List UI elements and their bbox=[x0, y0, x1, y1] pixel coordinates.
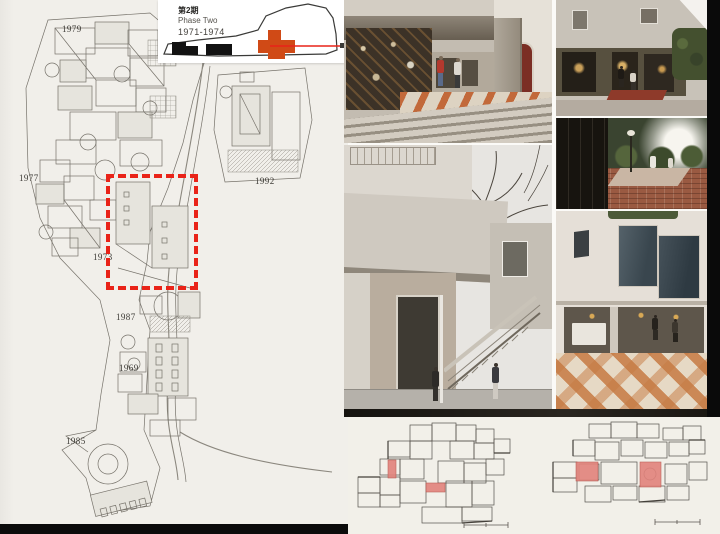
scan-edge-bottom-left bbox=[0, 524, 348, 534]
pedestrian-white-top bbox=[454, 58, 461, 88]
year-label-1979: 1979 bbox=[62, 24, 82, 34]
scan-edge-right bbox=[707, 0, 720, 417]
glass-window-1 bbox=[618, 225, 658, 287]
presentation-board: 1979 1977 1973 1987 1969 1985 1992 第2期 P… bbox=[0, 0, 720, 534]
hedge bbox=[672, 28, 707, 80]
pilaster bbox=[610, 307, 618, 353]
cafe-patron-1 bbox=[652, 315, 658, 340]
ground bbox=[556, 100, 707, 116]
checkered-plaza bbox=[556, 353, 707, 409]
cantilever-volume bbox=[344, 193, 508, 284]
roof-greenery bbox=[608, 211, 678, 219]
white-counter bbox=[572, 323, 606, 345]
facade-window-1 bbox=[572, 10, 588, 30]
pedestrian-dark-coat bbox=[432, 367, 439, 401]
pedestrian-red-jacket bbox=[437, 56, 444, 86]
year-label-1987: 1987 bbox=[116, 312, 136, 322]
light-walkway bbox=[608, 168, 691, 186]
canopy-structure bbox=[556, 118, 608, 209]
lamp-post bbox=[630, 134, 632, 172]
phase-two-highlight-box bbox=[106, 174, 198, 290]
floor-plans-panel bbox=[348, 417, 720, 534]
floor-plan-left bbox=[352, 419, 552, 531]
highlighted-room-right-1 bbox=[576, 462, 598, 481]
site-outline-key-diagram bbox=[158, 0, 345, 63]
bushes bbox=[606, 136, 707, 170]
white-sculpture-2 bbox=[668, 158, 673, 168]
phase-key-inset: 第2期 Phase Two 1971-1974 bbox=[158, 0, 345, 63]
floor-plan-right bbox=[545, 420, 717, 530]
photo-courtyard bbox=[556, 118, 707, 209]
existing-phase-shape-2 bbox=[206, 44, 232, 55]
photo-corner-building bbox=[556, 211, 707, 409]
scale-bar-right bbox=[655, 519, 700, 525]
photo-shopfronts bbox=[556, 0, 707, 116]
highlighted-room-left-1 bbox=[388, 460, 396, 478]
photo-street-stair bbox=[344, 145, 552, 409]
street-pavement bbox=[344, 389, 552, 409]
small-window bbox=[574, 230, 589, 258]
year-label-1977: 1977 bbox=[19, 173, 39, 183]
year-label-1985: 1985 bbox=[66, 436, 86, 446]
white-pole bbox=[440, 295, 443, 403]
lamp-head bbox=[627, 130, 635, 136]
rear-window bbox=[502, 241, 528, 277]
building-1992-drawing bbox=[214, 68, 312, 182]
photo-plaza-steps bbox=[344, 0, 552, 143]
year-label-1992: 1992 bbox=[255, 176, 275, 186]
cafe-patron-2 bbox=[672, 319, 678, 342]
shop-opening-1 bbox=[562, 52, 596, 92]
existing-phase-shape-1 bbox=[172, 42, 198, 55]
glass-window-2 bbox=[658, 235, 700, 299]
photo-bottom-edge bbox=[344, 409, 710, 417]
back-shop-window-2 bbox=[462, 60, 478, 86]
balcony-rail bbox=[350, 147, 436, 165]
floor-slab-line bbox=[556, 301, 707, 305]
shop-opening-3 bbox=[644, 54, 674, 92]
white-sculpture-1 bbox=[650, 156, 656, 168]
facade-window-2 bbox=[640, 8, 658, 24]
shopper-2 bbox=[630, 70, 636, 90]
highlighted-room-left-2 bbox=[426, 483, 445, 492]
site-plan-panel: 1979 1977 1973 1987 1969 1985 1992 第2期 P… bbox=[0, 0, 348, 534]
pedestrian-light-pants bbox=[492, 363, 499, 399]
white-corner bbox=[668, 0, 707, 30]
shopper-1 bbox=[618, 66, 624, 87]
highlighted-room-right-2 bbox=[640, 462, 661, 487]
year-label-1969: 1969 bbox=[119, 363, 139, 373]
